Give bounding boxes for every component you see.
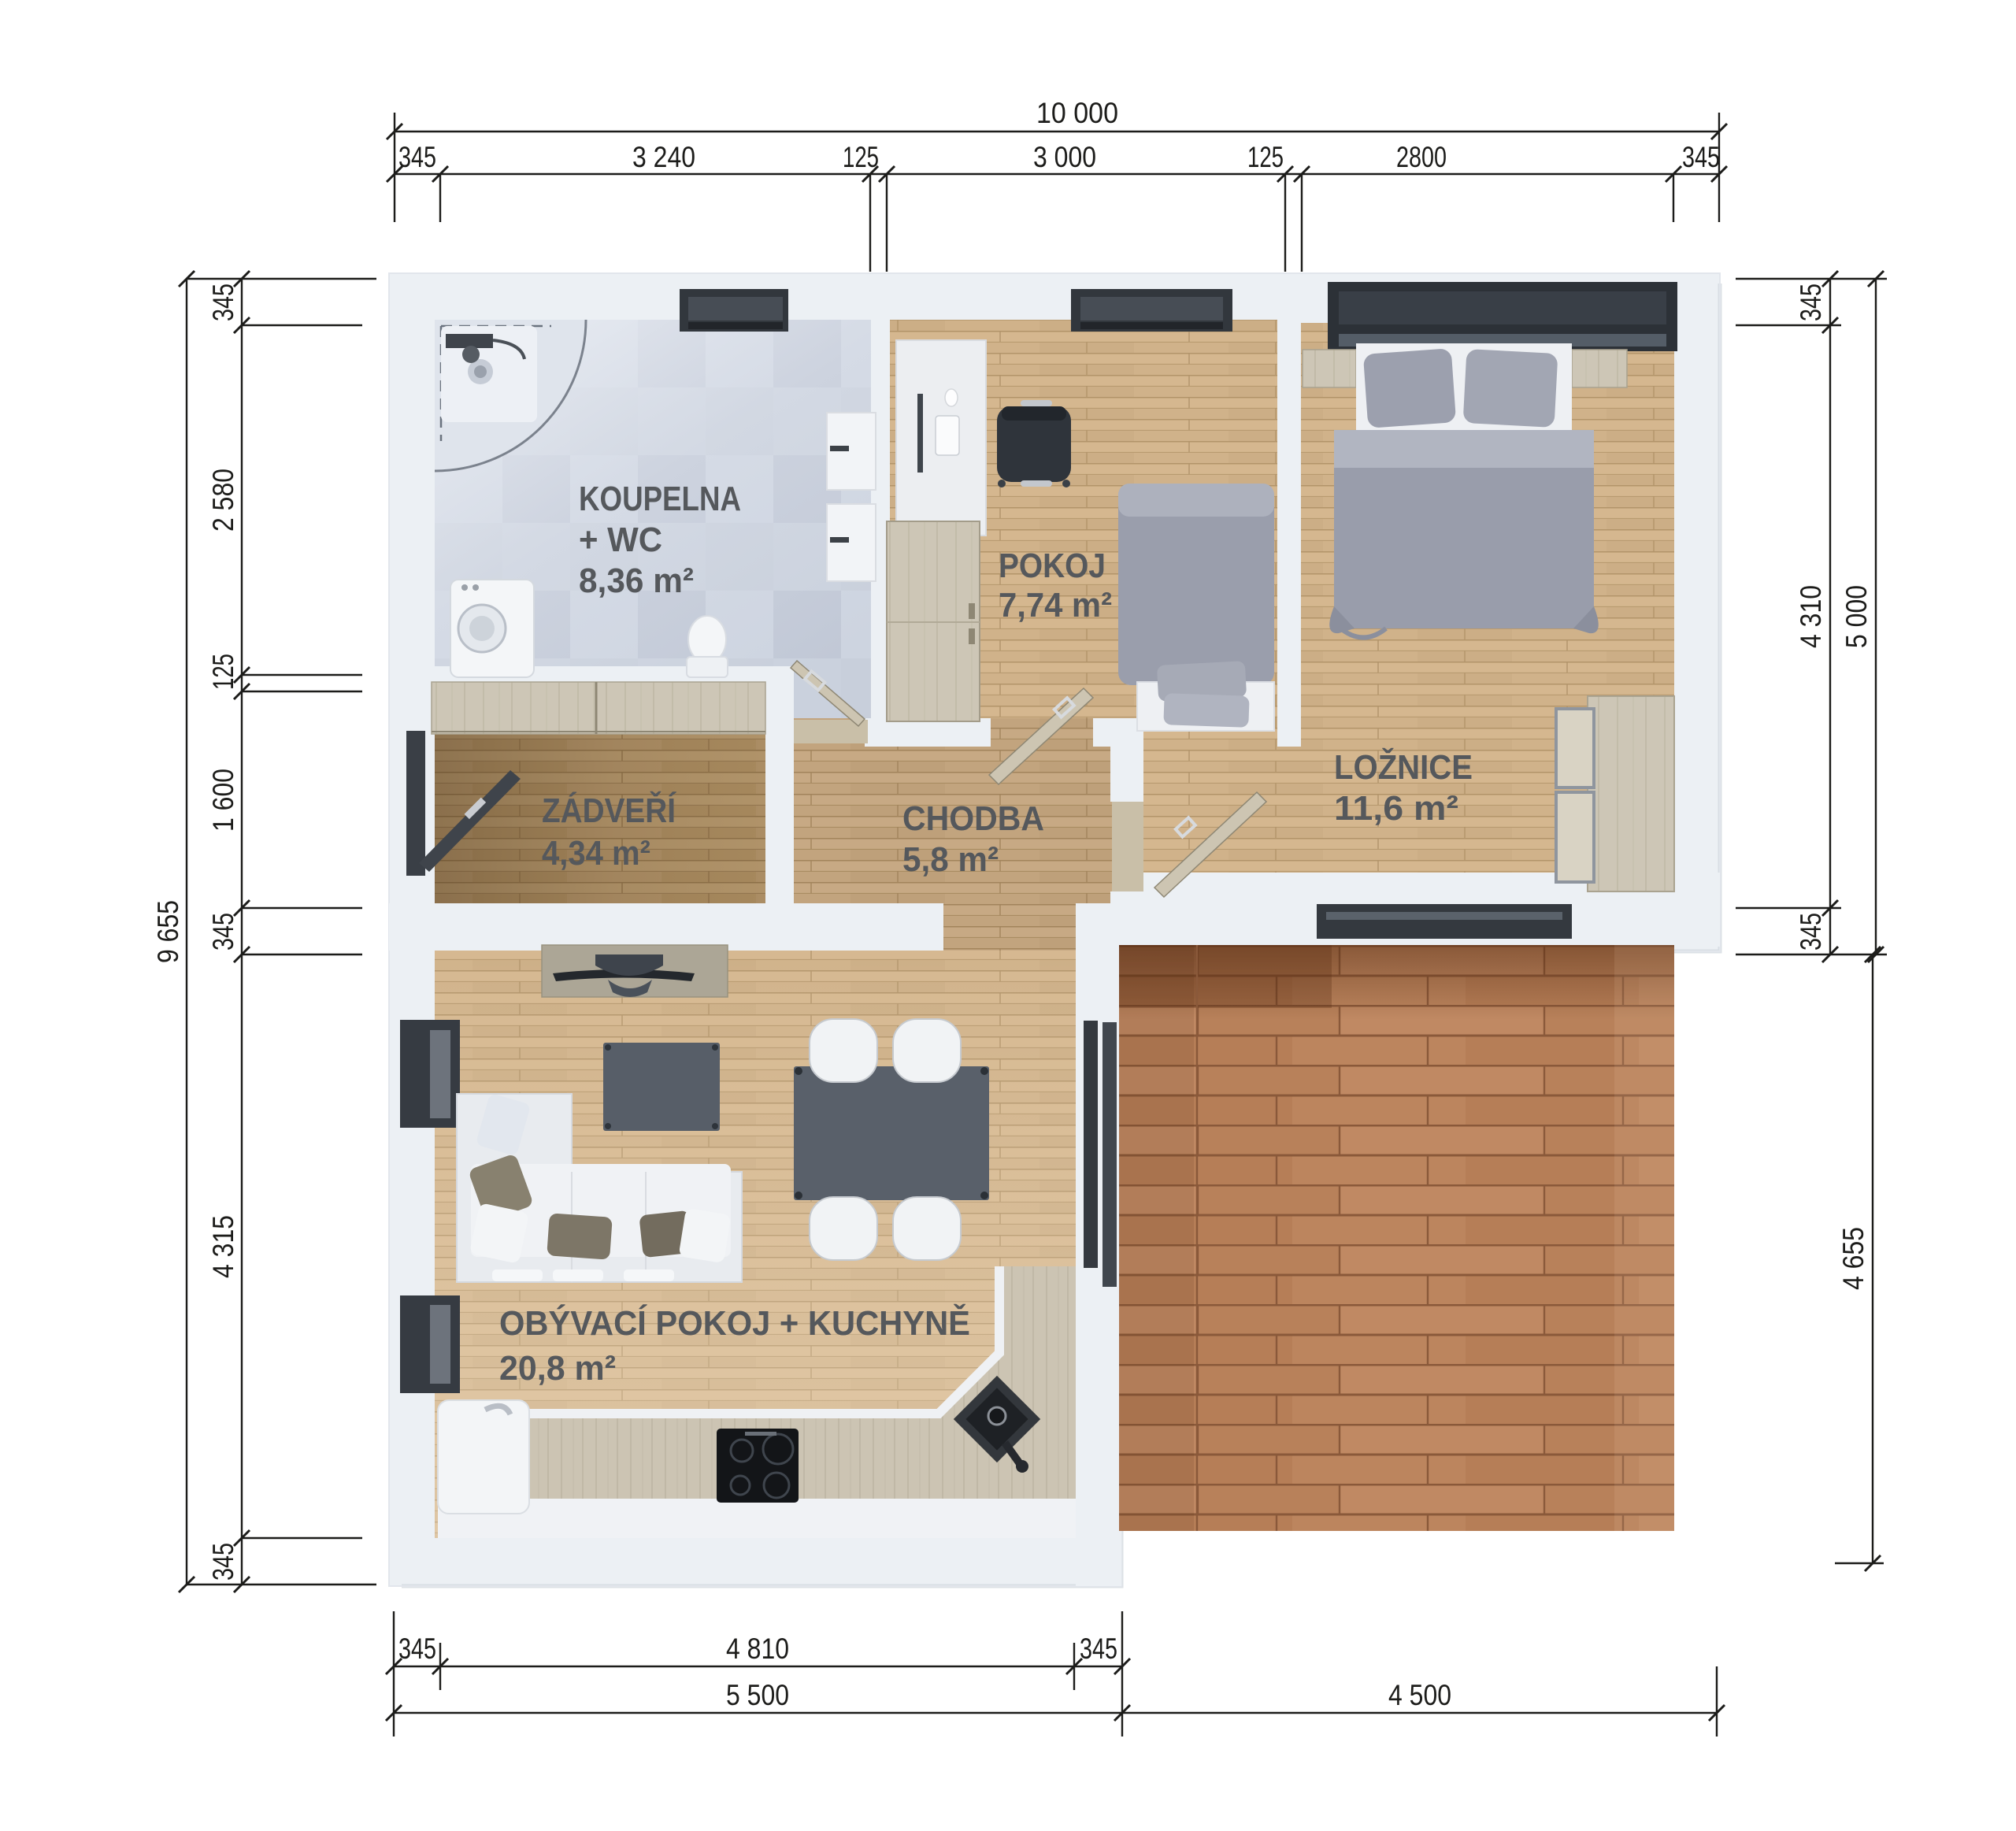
- svg-text:5 000: 5 000: [1840, 585, 1873, 648]
- svg-text:125: 125: [207, 654, 239, 690]
- svg-text:4 500: 4 500: [1388, 1679, 1451, 1711]
- svg-text:ZÁDVEŘÍ: ZÁDVEŘÍ: [542, 791, 677, 830]
- svg-text:345: 345: [207, 913, 239, 951]
- svg-text:1 600: 1 600: [207, 769, 239, 832]
- svg-text:3 000: 3 000: [1033, 141, 1096, 173]
- svg-text:3 240: 3 240: [632, 141, 695, 173]
- svg-text:POKOJ: POKOJ: [999, 547, 1106, 585]
- svg-text:345: 345: [1795, 284, 1827, 321]
- svg-text:345: 345: [398, 141, 436, 173]
- svg-text:7,74 m²: 7,74 m²: [999, 586, 1112, 625]
- svg-text:2 580: 2 580: [207, 469, 239, 532]
- svg-text:345: 345: [1080, 1633, 1117, 1665]
- svg-text:10 000: 10 000: [1036, 97, 1118, 129]
- svg-text:345: 345: [1795, 913, 1827, 951]
- svg-text:9 655: 9 655: [152, 900, 184, 963]
- svg-text:8,36 m²: 8,36 m²: [579, 562, 694, 600]
- svg-text:4,34 m²: 4,34 m²: [542, 834, 650, 873]
- svg-text:5,8 m²: 5,8 m²: [902, 840, 999, 879]
- svg-text:345: 345: [207, 1543, 239, 1581]
- svg-text:5 500: 5 500: [726, 1679, 789, 1711]
- svg-text:4 310: 4 310: [1795, 585, 1827, 648]
- svg-text:125: 125: [1247, 141, 1284, 173]
- svg-text:LOŽNICE: LOŽNICE: [1334, 747, 1473, 787]
- svg-text:4 315: 4 315: [207, 1215, 239, 1278]
- svg-text:CHODBA: CHODBA: [902, 799, 1044, 838]
- svg-text:OBÝVACÍ POKOJ + KUCHYNĚ: OBÝVACÍ POKOJ + KUCHYNĚ: [499, 1303, 970, 1343]
- svg-text:KOUPELNA: KOUPELNA: [579, 480, 741, 518]
- svg-text:345: 345: [1682, 141, 1720, 173]
- svg-text:4 810: 4 810: [726, 1633, 789, 1665]
- svg-text:2800: 2800: [1396, 141, 1447, 173]
- svg-text:11,6 m²: 11,6 m²: [1334, 789, 1458, 828]
- svg-text:4 655: 4 655: [1837, 1227, 1870, 1290]
- svg-text:+ WC: + WC: [579, 521, 662, 559]
- svg-text:345: 345: [398, 1633, 436, 1665]
- svg-text:345: 345: [207, 284, 239, 321]
- svg-text:20,8 m²: 20,8 m²: [499, 1349, 616, 1388]
- svg-text:125: 125: [843, 141, 879, 173]
